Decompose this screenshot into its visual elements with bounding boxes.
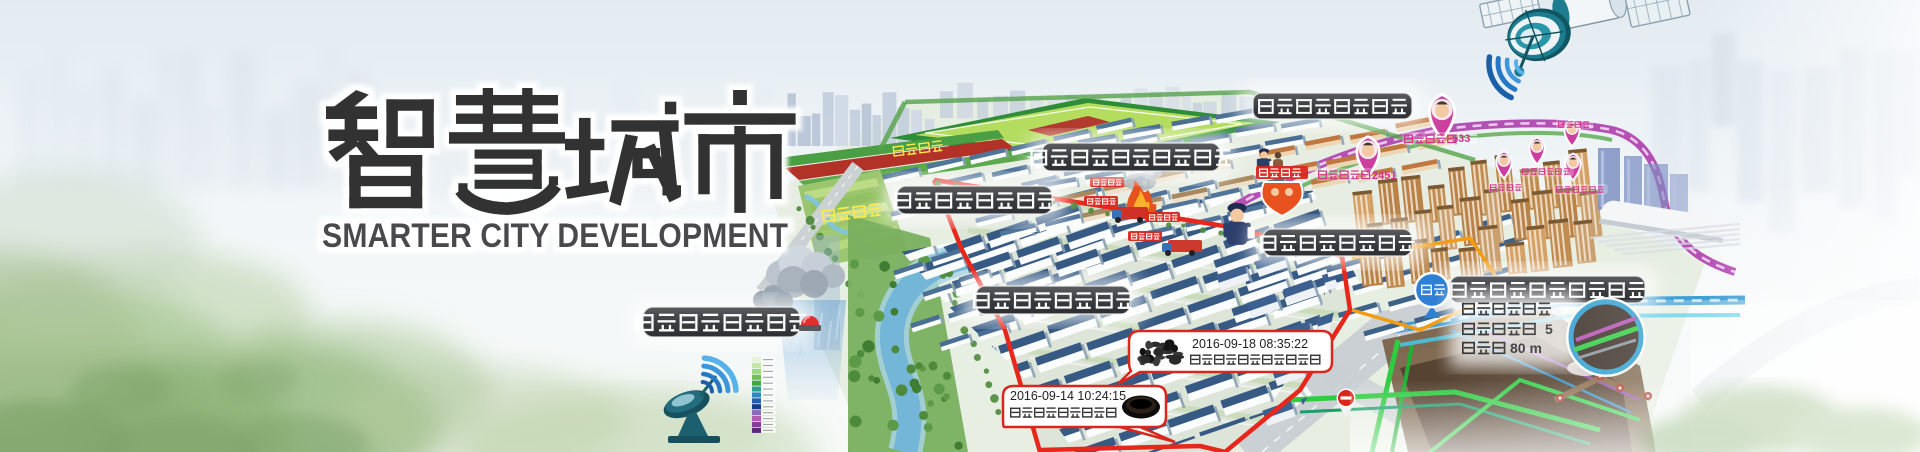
svg-text:2016-09-14 10:24:15: 2016-09-14 10:24:15 xyxy=(1010,389,1126,403)
svg-text:2016-09-18 08:35:22: 2016-09-18 08:35:22 xyxy=(1192,337,1308,351)
svg-text:533: 533 xyxy=(1452,133,1470,145)
svg-text:2451: 2451 xyxy=(1372,170,1396,182)
svg-text:SMARTER CITY DEVELOPMENT: SMARTER CITY DEVELOPMENT xyxy=(322,217,788,255)
